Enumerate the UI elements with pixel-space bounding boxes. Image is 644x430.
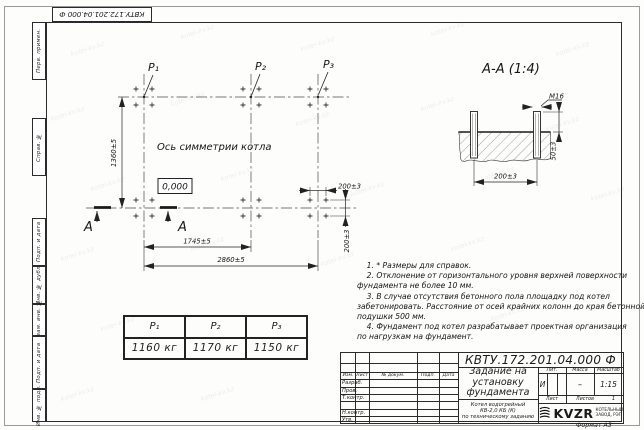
tb-scale-value: 1:15 [594, 373, 623, 395]
tb-row-tkontr: Т.контр. [342, 394, 369, 401]
load-label-p1: P₁ [148, 61, 159, 74]
tb-product-subtitle: Котел водогрейный КВ-2,0 КБ (К) по техни… [458, 399, 538, 423]
section-letter-right: А [177, 220, 187, 235]
tb-mass-value: – [566, 373, 594, 395]
tb-sheets-value: 1 [604, 395, 623, 403]
load-label-p2: P₂ [255, 60, 267, 73]
load-label-p3: P₃ [323, 58, 335, 71]
dim-text-1745: 1745±5 [183, 238, 210, 246]
kvzr-coil-icon [538, 406, 551, 420]
section-cut-marks [94, 208, 177, 223]
dim-text-1360: 1360±5 [110, 138, 118, 167]
tb-row-razrab: Разраб. [342, 379, 369, 387]
tb-sheets-label: Листов [566, 395, 604, 403]
tb-drawing-title: Задание на установку фундамента [458, 367, 538, 399]
tb-company-cell: KVZR КОТЕЛЬНЫЙ ЗАВОД, РЭП [538, 403, 623, 423]
load-table-value-p1: 1160 кг [124, 338, 185, 360]
load-table-header-p1: P₁ [124, 316, 185, 338]
tb-col-izm: Изм. [341, 372, 355, 379]
tb-row-nkontr: Н.контр. [342, 409, 369, 416]
bolt-thread-label: М16 [549, 93, 564, 101]
tb-lit-value: И [538, 373, 547, 395]
load-table-header-p2: P₂ [185, 316, 246, 338]
tb-row-utv: Утв. [342, 416, 369, 423]
dim-text-50: 50±3 [550, 142, 558, 161]
tb-col-data: Дата [439, 372, 458, 379]
format-label: Формат А3 [576, 422, 612, 429]
load-table-header-p3: P₃ [246, 316, 307, 338]
section-view-title: А-А (1:4) [481, 62, 540, 77]
axis-symmetry-label: Ось симметрии котла [157, 142, 272, 153]
elevation-mark-value: 0,000 [162, 183, 188, 193]
bolt-thread-callout [522, 100, 562, 107]
tb-line [341, 401, 458, 402]
dim-text-200h: 200±3 [338, 183, 361, 191]
load-table: P₁ P₂ P₃ 1160 кг 1170 кг 1150 кг [123, 315, 308, 360]
tb-doc-number: КВТУ.172.201.04.000 Ф [458, 353, 623, 367]
section-letter-left: А [83, 220, 93, 235]
kvzr-logo-text: KVZR [553, 406, 593, 421]
technical-notes: 1. * Размеры для справок. 2. Отклонение … [357, 261, 621, 343]
load-table-value-p3: 1150 кг [246, 338, 307, 360]
dim-text-2860: 2860±5 [217, 256, 244, 264]
tb-line [547, 373, 548, 395]
tb-col-ndokum: № докум. [369, 372, 417, 379]
tb-row-prov: Пров. [342, 387, 369, 394]
tb-sheet-label: Лист [538, 395, 566, 403]
dim-text-200v: 200±3 [343, 230, 351, 253]
dim-text-200s: 200±3 [494, 173, 517, 181]
tb-col-podp: Подп. [417, 372, 439, 379]
kvzr-logo-subtext: КОТЕЛЬНЫЙ ЗАВОД, РЭП [596, 408, 623, 418]
dim-50-extensions [543, 112, 563, 132]
title-block: КВТУ.172.201.04.000 Ф Задание на установ… [340, 352, 624, 424]
plan-centerlines [86, 74, 357, 238]
tb-line [341, 363, 458, 364]
tb-line [557, 373, 558, 395]
tb-col-list: Лист [355, 372, 369, 379]
load-point-leaders [145, 72, 329, 96]
load-table-value-p2: 1170 кг [185, 338, 246, 360]
